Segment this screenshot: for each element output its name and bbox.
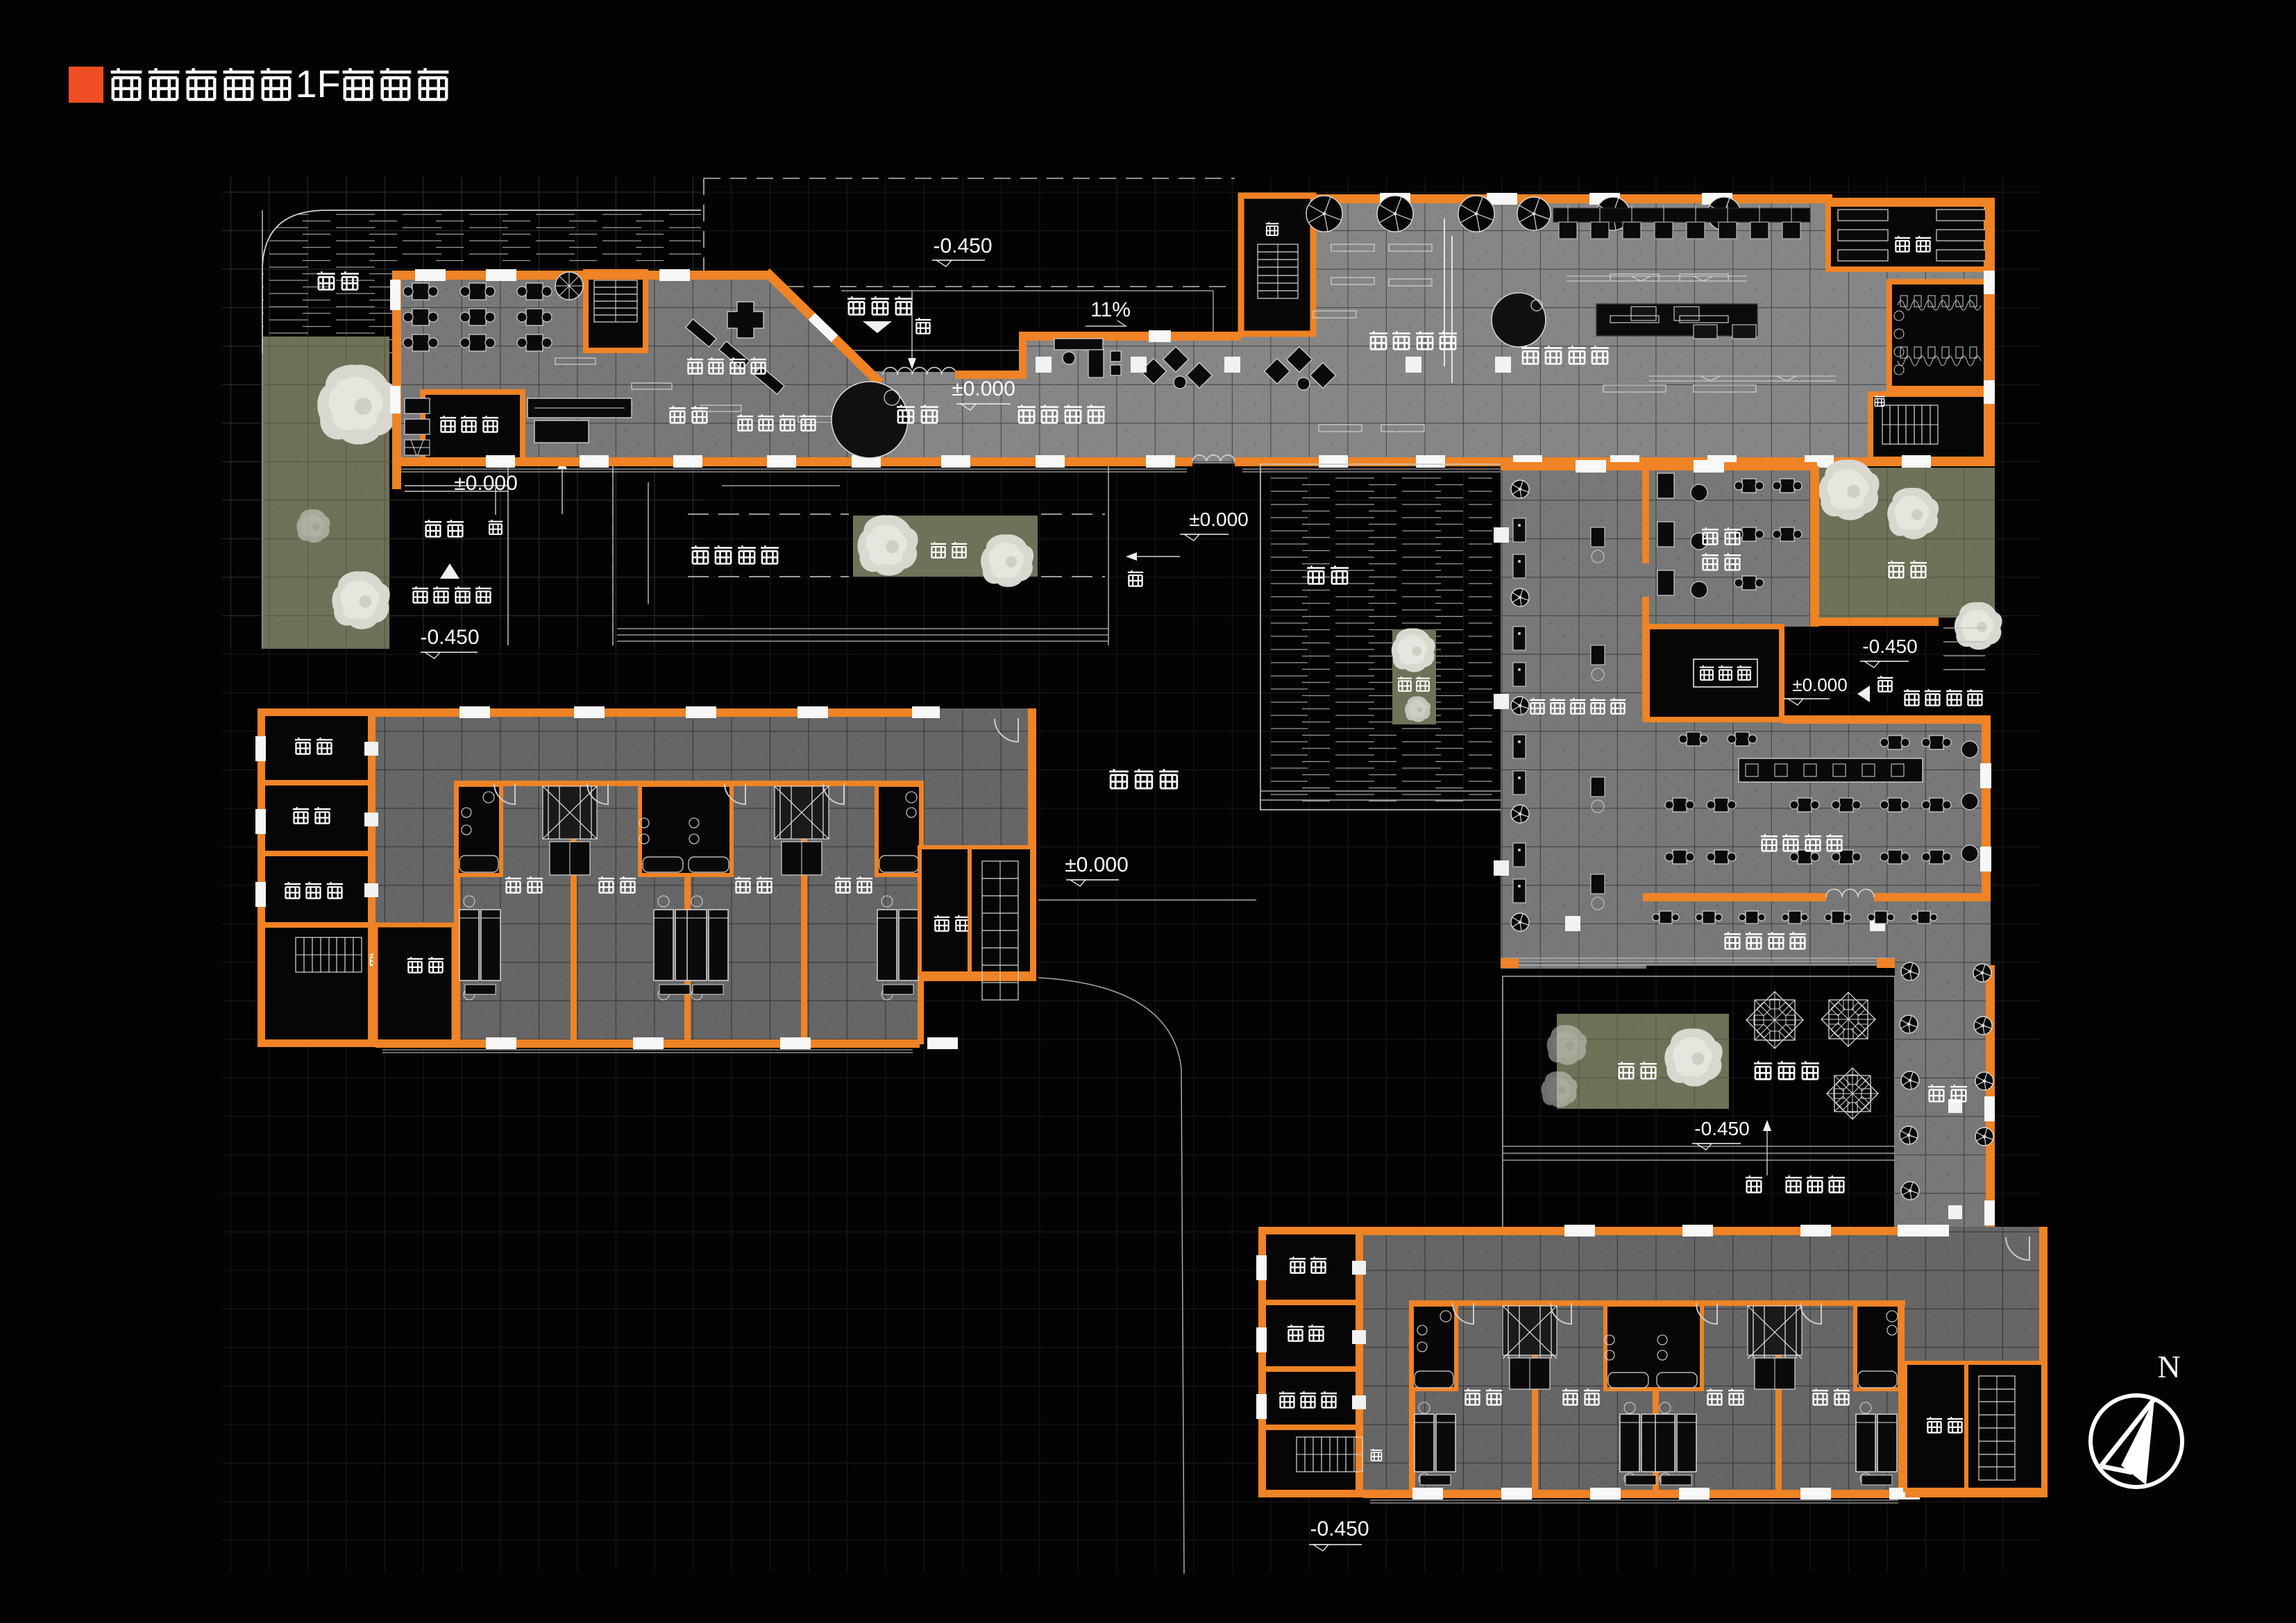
svg-text:-0.450: -0.450 [1862, 636, 1917, 657]
svg-text:±0.000: ±0.000 [454, 472, 518, 495]
svg-text:±0.000: ±0.000 [1065, 853, 1129, 876]
svg-text:-0.450: -0.450 [1694, 1118, 1749, 1139]
svg-text:-0.450: -0.450 [933, 235, 992, 257]
svg-text:-0.450: -0.450 [420, 626, 479, 649]
svg-text:±0.000: ±0.000 [952, 377, 1015, 400]
svg-text:1F: 1F [295, 62, 340, 105]
svg-text:-0.450: -0.450 [1310, 1518, 1369, 1540]
svg-text:±0.000: ±0.000 [1792, 674, 1847, 695]
svg-text:±0.000: ±0.000 [1189, 509, 1248, 530]
svg-text:N: N [2157, 1349, 2180, 1384]
svg-text:11%: 11% [1090, 298, 1131, 321]
